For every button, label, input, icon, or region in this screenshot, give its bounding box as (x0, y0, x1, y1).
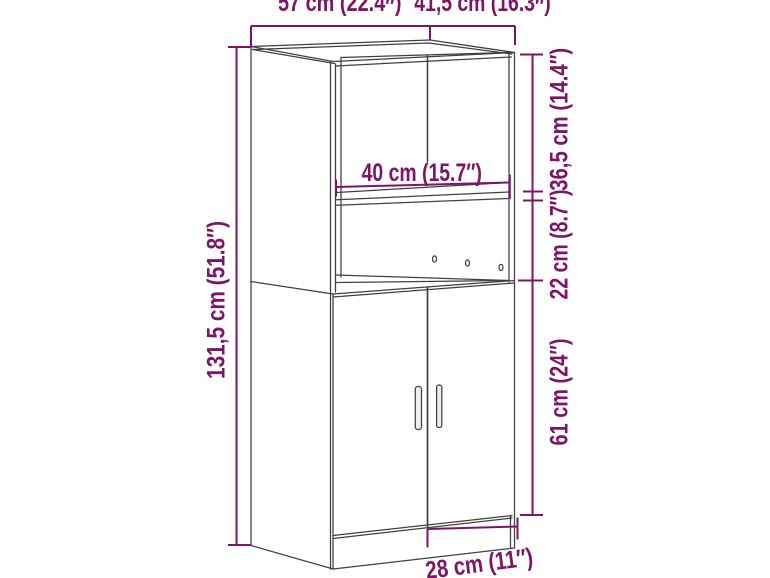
svg-text:22 cm (8.7″): 22 cm (8.7″) (546, 190, 574, 300)
svg-text:36,5 cm (14.4″): 36,5 cm (14.4″) (546, 48, 574, 191)
svg-text:40 cm (15.7″): 40 cm (15.7″) (362, 159, 482, 187)
svg-text:61 cm (24″): 61 cm (24″) (546, 339, 574, 446)
svg-text:131,5 cm (51.8″): 131,5 cm (51.8″) (203, 221, 231, 379)
